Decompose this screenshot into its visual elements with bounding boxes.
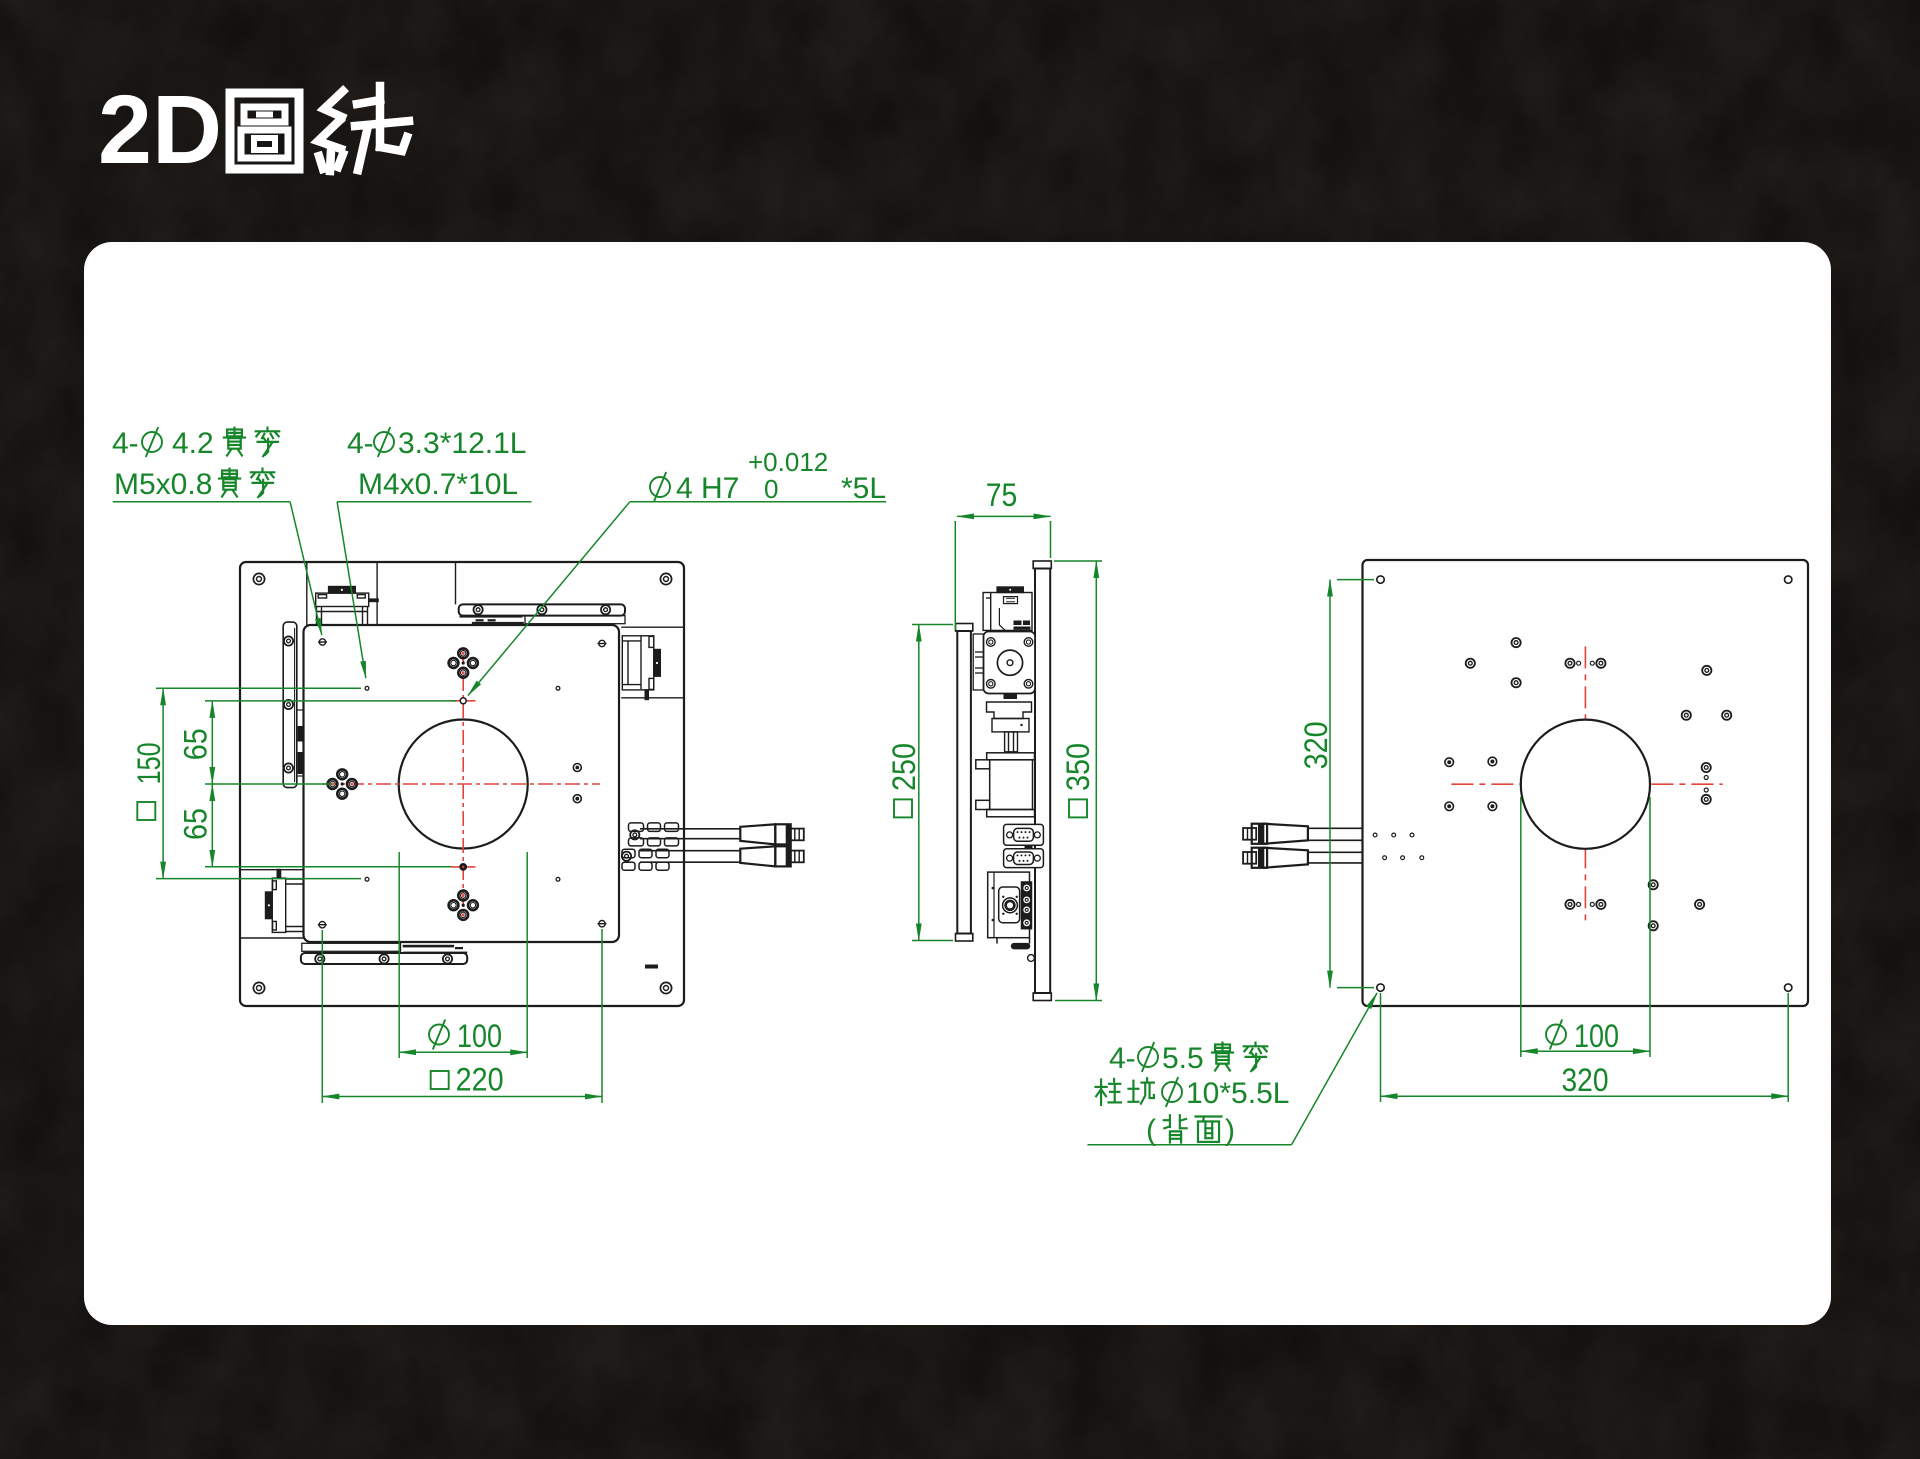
- svg-text:10*5.5L: 10*5.5L: [1186, 1077, 1289, 1110]
- svg-text:100: 100: [1574, 1018, 1619, 1054]
- svg-text:250: 250: [886, 743, 922, 791]
- svg-text:220: 220: [456, 1062, 504, 1098]
- svg-text:4-: 4-: [1109, 1042, 1136, 1075]
- svg-text:65: 65: [178, 728, 214, 760]
- svg-text:320: 320: [1562, 1062, 1609, 1098]
- svg-text:M4x0.7*10L: M4x0.7*10L: [358, 468, 518, 501]
- svg-text:150: 150: [131, 742, 167, 784]
- svg-text:(: (: [1146, 1114, 1156, 1147]
- svg-text:): ): [1225, 1114, 1235, 1147]
- svg-text:4-: 4-: [112, 427, 139, 460]
- svg-text:+0.012: +0.012: [748, 447, 828, 477]
- svg-text:M5x0.8: M5x0.8: [114, 468, 212, 501]
- svg-text:3.3*12.1L: 3.3*12.1L: [398, 427, 526, 460]
- svg-text:2D: 2D: [98, 75, 222, 184]
- svg-text:100: 100: [457, 1018, 502, 1054]
- svg-text:*5L: *5L: [841, 472, 886, 505]
- svg-text:350: 350: [1060, 743, 1096, 791]
- svg-text:4 H7: 4 H7: [676, 472, 739, 505]
- svg-text:4-: 4-: [347, 427, 374, 460]
- svg-text:75: 75: [986, 477, 1018, 513]
- svg-text:0: 0: [764, 474, 778, 504]
- svg-text:65: 65: [178, 808, 214, 840]
- svg-text:320: 320: [1298, 721, 1334, 769]
- svg-text:4.2: 4.2: [172, 427, 214, 460]
- svg-text:5.5: 5.5: [1162, 1042, 1204, 1075]
